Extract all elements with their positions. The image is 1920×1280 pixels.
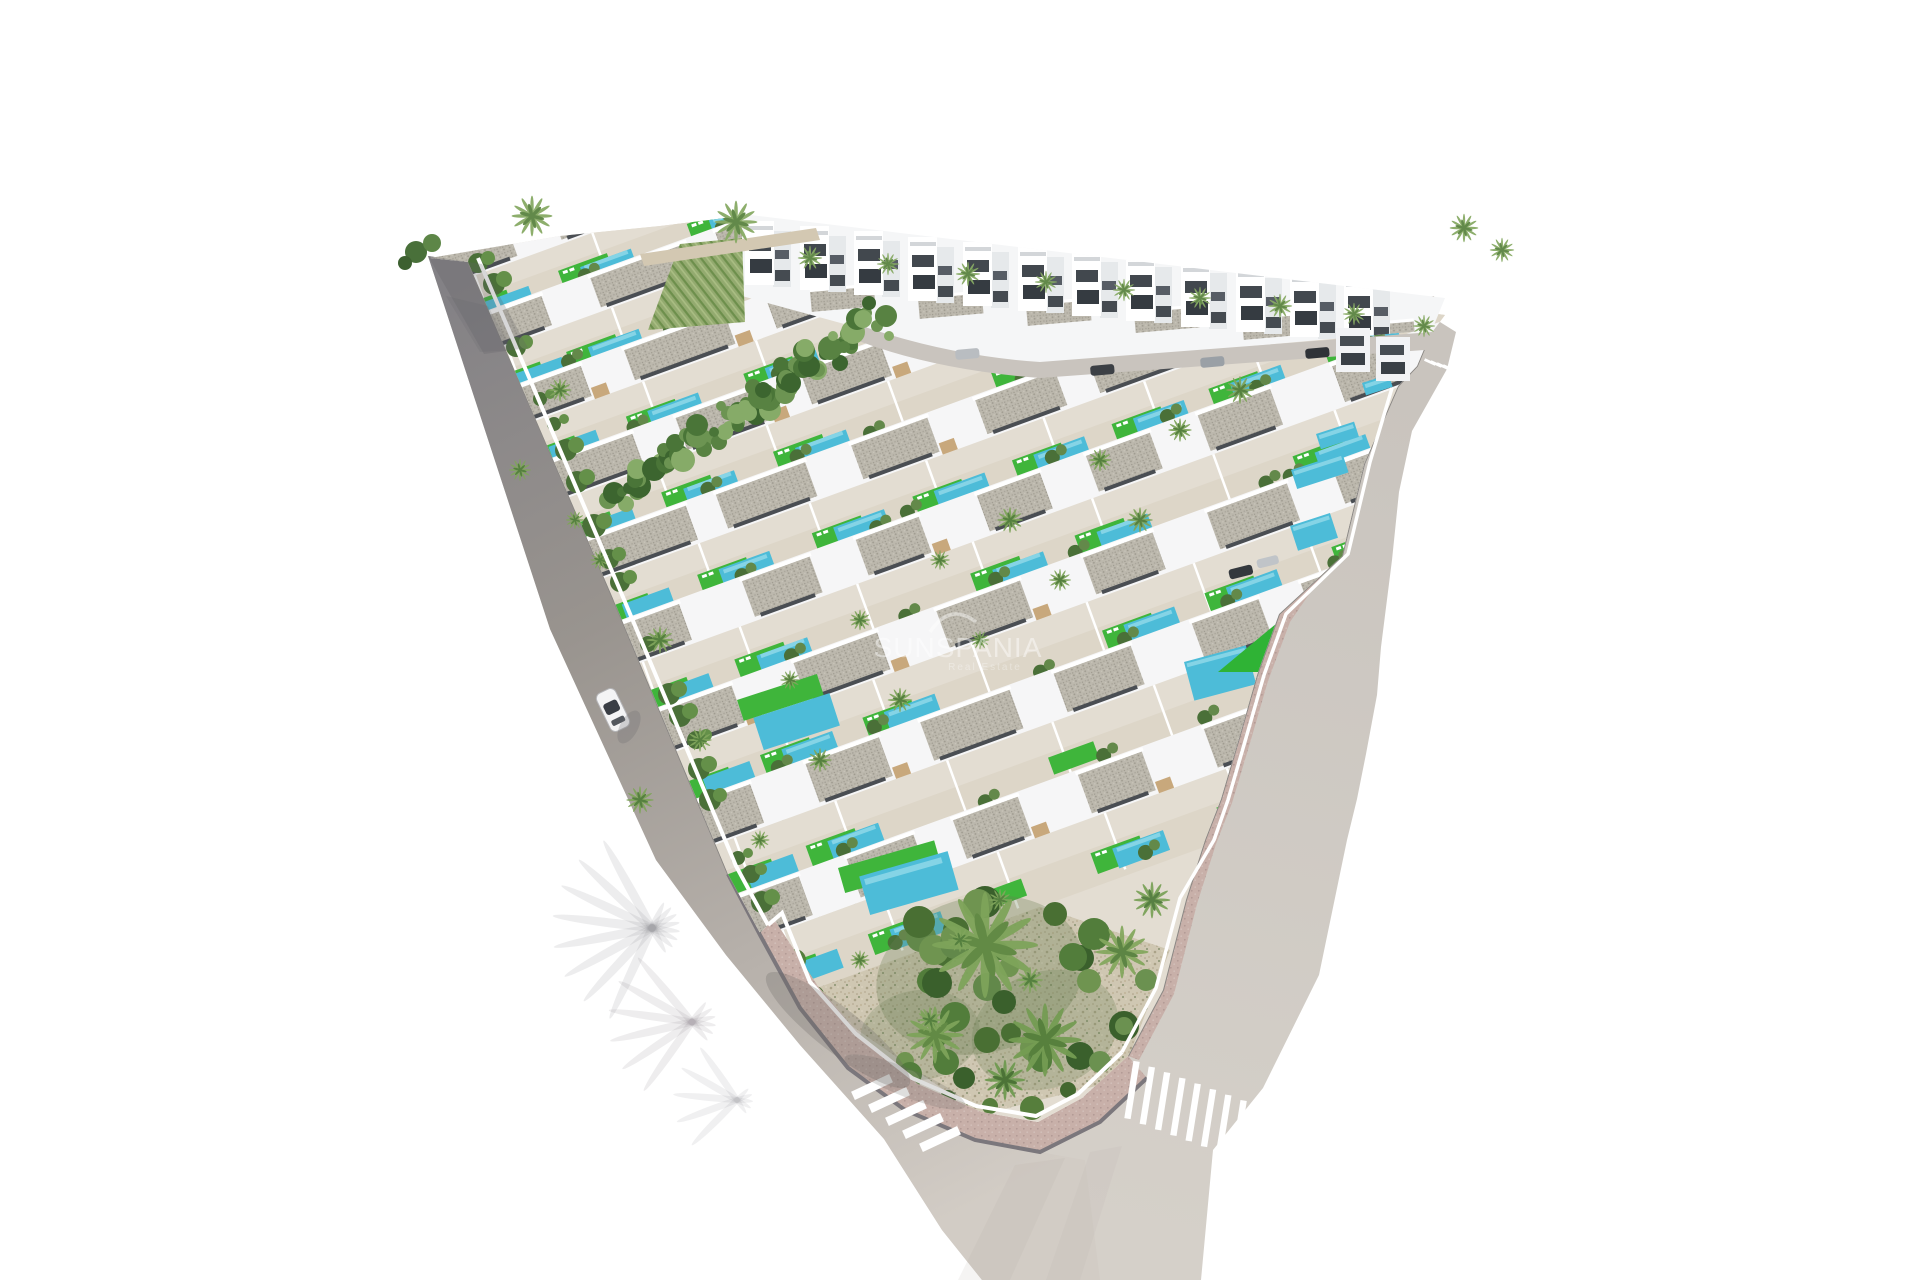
svg-text:Real Estate: Real Estate xyxy=(948,662,1022,673)
svg-text:SUNSPANIA: SUNSPANIA xyxy=(874,632,1043,663)
